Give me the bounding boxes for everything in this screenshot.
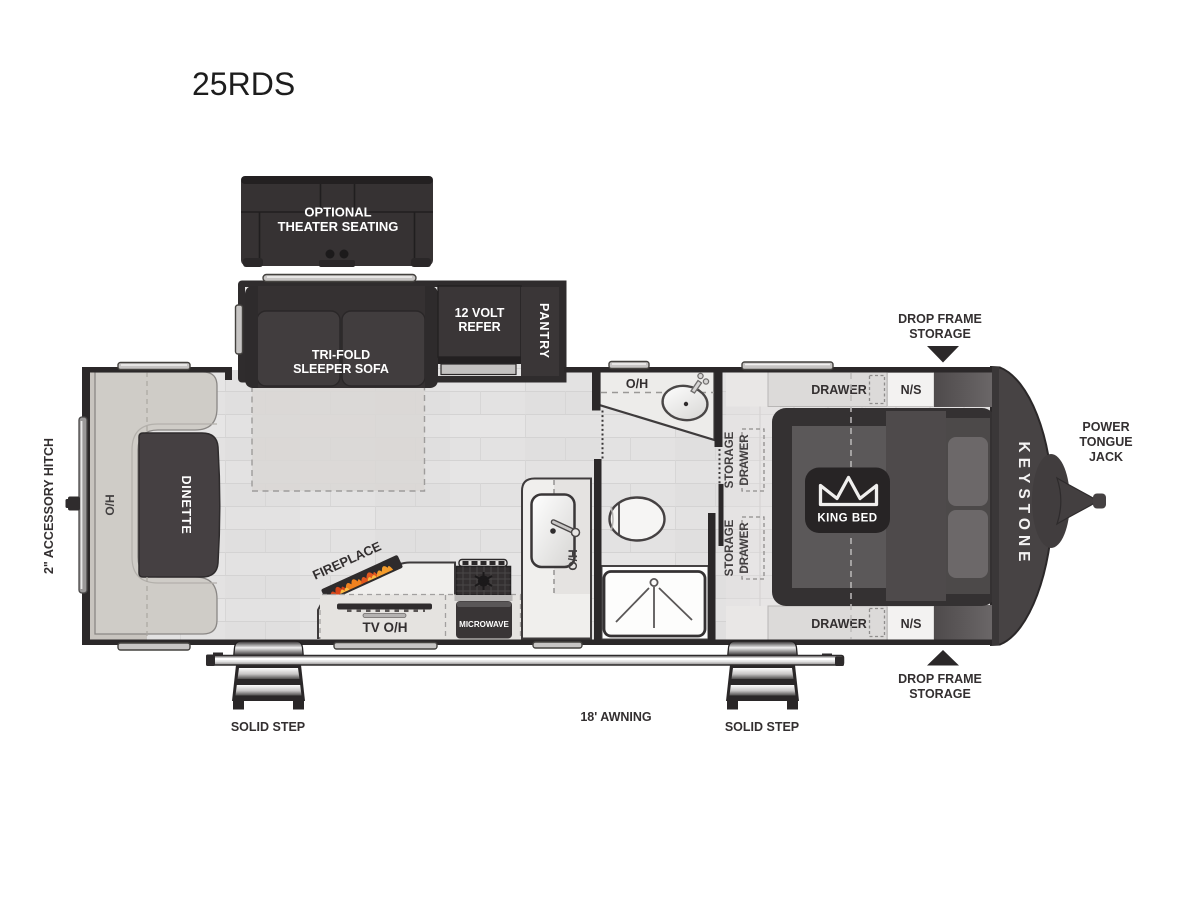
svg-text:STORAGE: STORAGE <box>724 431 736 488</box>
svg-text:N/S: N/S <box>901 617 922 631</box>
svg-text:STORAGE: STORAGE <box>909 327 971 341</box>
svg-text:THEATER SEATING: THEATER SEATING <box>278 219 399 234</box>
svg-text:SLEEPER SOFA: SLEEPER SOFA <box>293 362 389 376</box>
svg-text:DRAWER: DRAWER <box>811 383 867 397</box>
svg-text:TV O/H: TV O/H <box>362 620 407 635</box>
svg-text:DINETTE: DINETTE <box>179 475 193 534</box>
svg-text:18' AWNING: 18' AWNING <box>580 710 651 724</box>
svg-text:O/H: O/H <box>566 549 580 570</box>
svg-text:OPTIONAL: OPTIONAL <box>304 205 371 220</box>
svg-text:KING BED: KING BED <box>817 513 877 525</box>
svg-text:STORAGE: STORAGE <box>909 687 971 701</box>
svg-text:O/H: O/H <box>626 377 648 391</box>
svg-text:SOLID STEP: SOLID STEP <box>231 720 305 734</box>
svg-text:TRI-FOLD: TRI-FOLD <box>312 348 370 362</box>
svg-text:SOLID STEP: SOLID STEP <box>725 720 799 734</box>
svg-text:DROP FRAME: DROP FRAME <box>898 672 982 686</box>
svg-text:JACK: JACK <box>1089 450 1123 464</box>
svg-text:POWER: POWER <box>1082 420 1129 434</box>
svg-text:REFER: REFER <box>458 320 500 334</box>
svg-text:N/S: N/S <box>901 383 922 397</box>
svg-text:2" ACCESSORY HITCH: 2" ACCESSORY HITCH <box>42 438 56 574</box>
svg-text:DRAWER: DRAWER <box>739 522 751 574</box>
svg-text:STORAGE: STORAGE <box>724 519 736 576</box>
svg-text:KEYSTONE: KEYSTONE <box>1015 442 1032 567</box>
svg-text:MICROWAVE: MICROWAVE <box>459 620 509 629</box>
svg-text:DROP FRAME: DROP FRAME <box>898 312 982 326</box>
svg-text:12 VOLT: 12 VOLT <box>455 306 505 320</box>
svg-text:DRAWER: DRAWER <box>811 617 867 631</box>
svg-text:DRAWER: DRAWER <box>739 434 751 486</box>
svg-text:TONGUE: TONGUE <box>1079 435 1132 449</box>
svg-text:O/H: O/H <box>103 494 117 515</box>
svg-text:25RDS: 25RDS <box>192 66 295 102</box>
svg-text:PANTRY: PANTRY <box>537 303 551 359</box>
